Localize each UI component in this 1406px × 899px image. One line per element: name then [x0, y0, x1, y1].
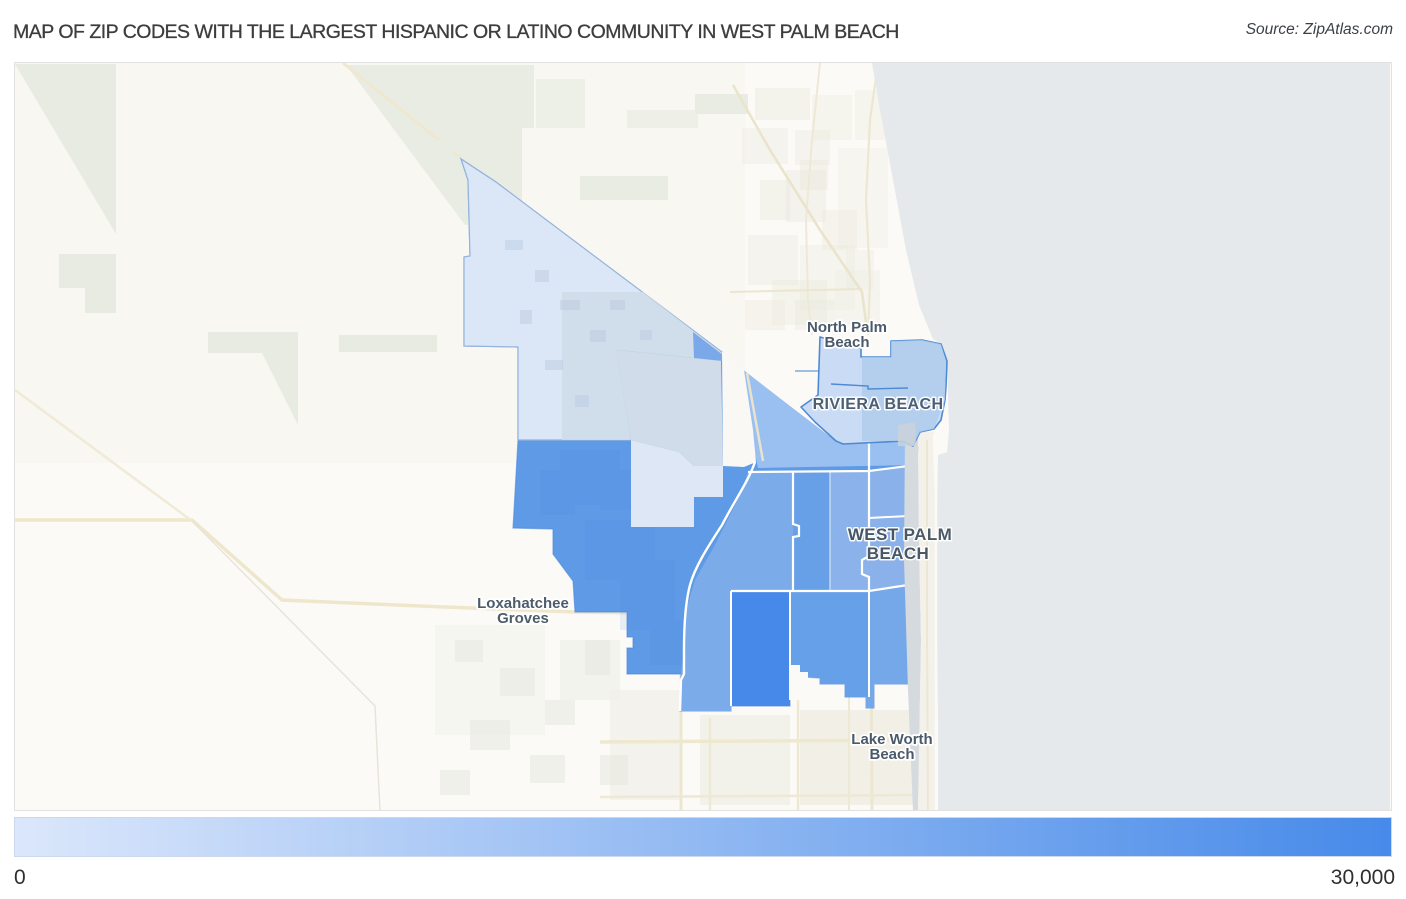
svg-text:Beach: Beach	[824, 334, 869, 351]
svg-text:WEST PALM: WEST PALM	[848, 525, 952, 544]
svg-text:Groves: Groves	[497, 610, 549, 627]
svg-text:BEACH: BEACH	[867, 544, 929, 563]
svg-text:RIVIERA BEACH: RIVIERA BEACH	[813, 396, 944, 413]
svg-text:Beach: Beach	[869, 746, 914, 763]
